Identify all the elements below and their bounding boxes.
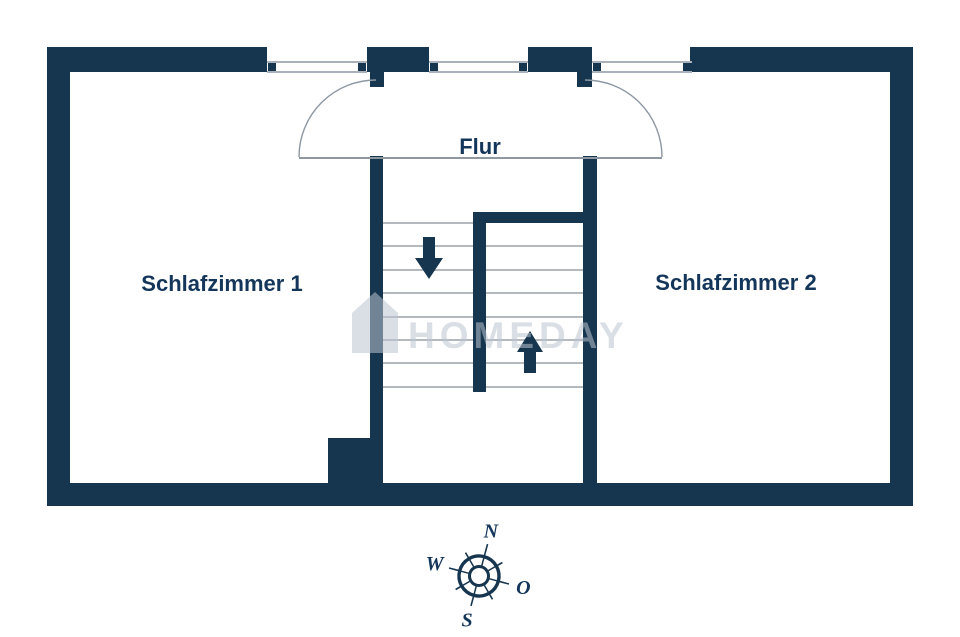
- compass-south-label: S: [462, 609, 473, 631]
- compass-west-label: W: [426, 553, 445, 575]
- compass-east-label: O: [516, 577, 530, 599]
- room-label-flur: Flur: [430, 134, 530, 159]
- watermark-house-icon: [352, 289, 398, 353]
- compass-north-label: N: [483, 521, 500, 543]
- door-swing-arc-left: [299, 80, 376, 157]
- door-swing-arc-right: [585, 80, 662, 157]
- stairs-down-arrow-icon: [415, 237, 443, 279]
- room-label-schlafzimmer-1: Schlafzimmer 1: [122, 271, 322, 296]
- compass-rose-icon: N W O S: [419, 516, 539, 636]
- watermark-text: HOMEDAY: [408, 319, 629, 353]
- room-label-schlafzimmer-2: Schlafzimmer 2: [636, 270, 836, 295]
- watermark: HOMEDAY: [352, 283, 652, 353]
- floor-plan: HOMEDAY Schlafzimmer 1 Flur Schlafzimmer…: [0, 0, 960, 637]
